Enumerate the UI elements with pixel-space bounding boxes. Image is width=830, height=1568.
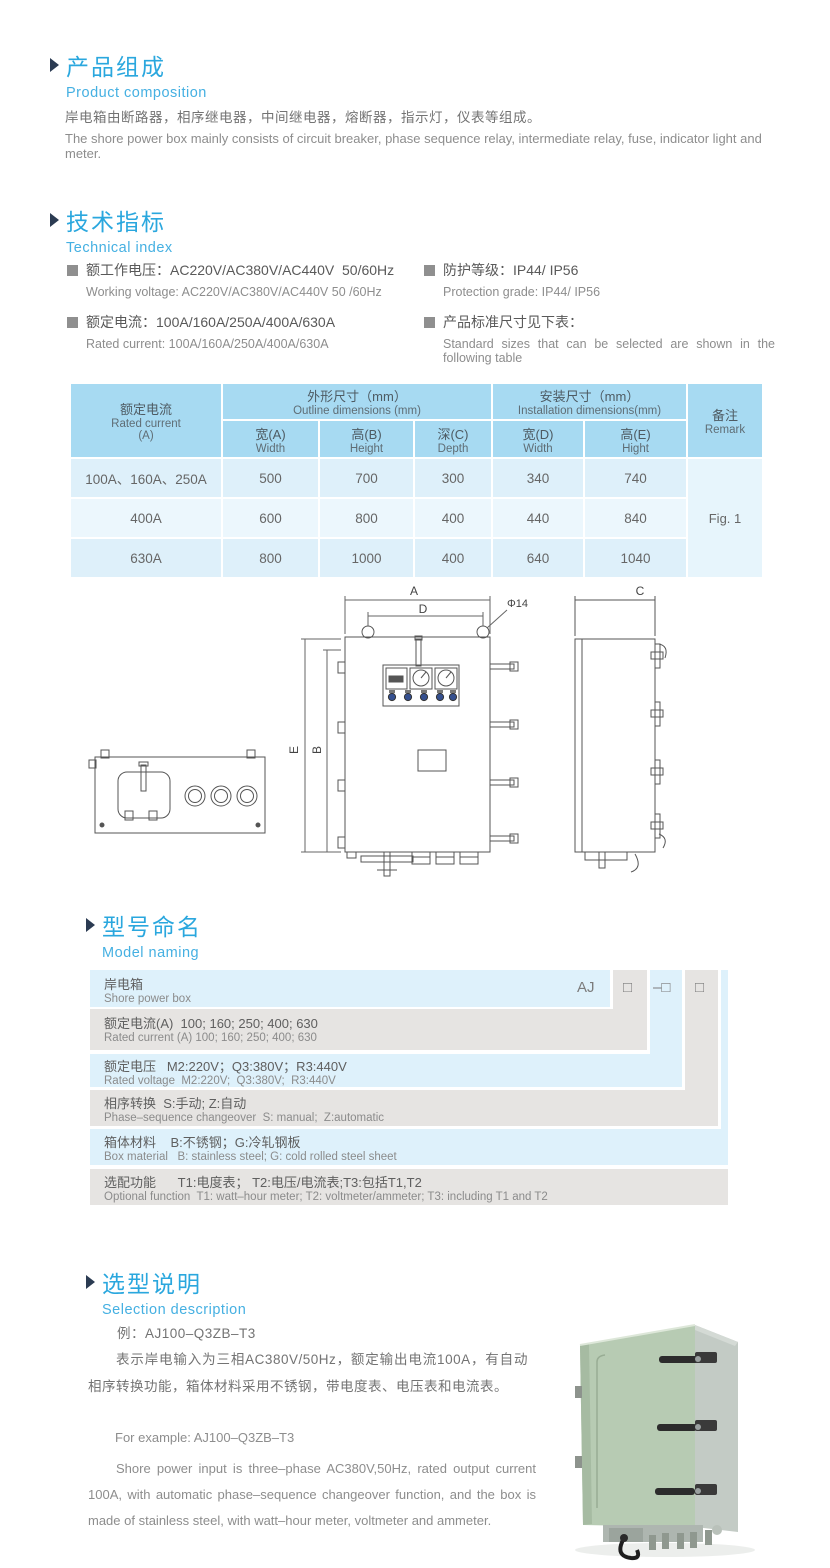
- model-code-box-1: □: [623, 979, 632, 996]
- dim-label-dia: Φ14: [507, 598, 528, 610]
- bullet-standard-sizes-en: Standard sizes that can be selected are …: [443, 337, 775, 365]
- product-photo: [545, 1300, 815, 1562]
- bullet-protection-grade-en: Protection grade: IP44/ IP56: [443, 285, 773, 299]
- dim-label-d: D: [419, 602, 428, 616]
- bullet-protection-grade: 防护等级：IP44/ IP56: [424, 260, 578, 280]
- model-prefix: AJ: [577, 979, 595, 996]
- col-header-rated-current: 额定电流 Rated current (A): [71, 384, 221, 457]
- dim-label-c: C: [636, 584, 645, 598]
- bullet-rated-current: 额定电流：100A/160A/250A/400A/630A: [67, 312, 335, 332]
- section-arrow-icon: [50, 58, 59, 72]
- model-row-product: 岸电箱 Shore power box: [90, 970, 610, 1007]
- section-title-en: Selection description: [102, 1302, 246, 1318]
- table-row: 400A 600 800 400 440 840: [71, 499, 762, 537]
- latch-icons: [490, 662, 518, 843]
- bullet-rated-current-en: Rated current: 100A/160A/250A/400A/630A: [86, 337, 416, 351]
- cabinet-illustration: [545, 1300, 815, 1562]
- section-title-en: Product composition: [66, 85, 207, 101]
- section-technical-header: 技术指标 Technical index: [50, 203, 173, 256]
- selection-body-en: Shore power input is three–phase AC380V,…: [88, 1456, 536, 1534]
- section-title-cn: 型号命名: [102, 908, 202, 942]
- section-composition-header: 产品组成 Product composition: [50, 48, 207, 101]
- subheader-width-a: 宽(A)Width: [223, 421, 318, 457]
- subheader-width-d: 宽(D)Width: [493, 421, 583, 457]
- bullet-square-icon: [67, 317, 78, 328]
- model-row-voltage: 额定电压 M2:220V；Q3:380V；R3:440V Rated volta…: [90, 1054, 682, 1087]
- section-model-header: 型号命名 Model naming: [86, 908, 202, 961]
- side-latch-icons: [651, 644, 666, 848]
- col-header-install: 安装尺寸（mm） Installation dimensions(mm): [493, 384, 686, 419]
- model-row-optional: 选配功能 T1:电度表； T2:电压/电流表;T3:包括T1,T2 Option…: [90, 1169, 728, 1205]
- composition-body-en: The shore power box mainly consists of c…: [65, 131, 775, 161]
- meter-panel: [383, 665, 459, 706]
- remark-cell: Fig. 1: [688, 459, 762, 577]
- dimension-lines: [301, 596, 507, 852]
- model-row-phase: 相序转换 S:手动; Z:自动 Phase–sequence changeove…: [90, 1090, 718, 1126]
- table-row: 630A 800 1000 400 640 1040: [71, 539, 762, 577]
- dimension-labels: A D Φ14 E B C: [287, 584, 645, 754]
- section-arrow-icon: [50, 213, 59, 227]
- dimensions-table: 额定电流 Rated current (A) 外形尺寸（mm） Outline …: [69, 382, 764, 579]
- composition-body-cn: 岸电箱由断路器，相序继电器，中间继电器，熔断器，指示灯，仪表等组成。: [65, 106, 765, 126]
- side-view-drawing: [575, 596, 666, 872]
- section-arrow-icon: [86, 918, 95, 932]
- section-title-en: Technical index: [66, 240, 173, 256]
- section-selection-header: 选型说明 Selection description: [86, 1265, 246, 1318]
- section-title-cn: 产品组成: [66, 48, 166, 82]
- dim-label-a: A: [410, 584, 418, 598]
- section-title-en: Model naming: [102, 945, 202, 961]
- bullet-standard-sizes: 产品标准尺寸见下表：: [424, 312, 583, 332]
- subheader-height-b: 高(B)Height: [320, 421, 413, 457]
- model-row-current: 额定电流(A) 100; 160; 250; 400; 630 Rated cu…: [90, 1009, 647, 1050]
- bottom-view-drawing: [89, 750, 265, 833]
- subheader-height-e: 高(E)Hight: [585, 421, 686, 457]
- table-row: 100A、160A、250A 500 700 300 340 740 Fig. …: [71, 459, 762, 497]
- model-code-box-3: □: [695, 979, 704, 996]
- selection-example-en: For example: AJ100–Q3ZB–T3: [115, 1430, 294, 1445]
- section-arrow-icon: [86, 1275, 95, 1289]
- selection-example-cn: 例：AJ100–Q3ZB–T3: [117, 1322, 256, 1342]
- dim-label-b: B: [310, 746, 324, 754]
- section-title-cn: 选型说明: [102, 1265, 202, 1299]
- dim-label-e: E: [287, 746, 301, 754]
- bullet-working-voltage: 额工作电压：AC220V/AC380V/AC440V 50/60Hz: [67, 260, 394, 280]
- bullet-working-voltage-en: Working voltage: AC220V/AC380V/AC440V 50…: [86, 285, 416, 299]
- front-view-drawing: [338, 626, 518, 876]
- selection-body-cn: 表示岸电输入为三相AC380V/50Hz，额定输出电流100A，有自动相序转换功…: [88, 1346, 528, 1400]
- catalog-page: 产品组成 Product composition 岸电箱由断路器，相序继电器，中…: [0, 0, 830, 1568]
- model-code-box-2: –□: [653, 979, 670, 996]
- bullet-square-icon: [67, 265, 78, 276]
- model-row-material: 箱体材料 B:不锈钢；G:冷轧钢板 Box material B: stainl…: [90, 1129, 728, 1165]
- outline-dimension-drawing: A D Φ14 E B C: [55, 582, 775, 894]
- section-title-cn: 技术指标: [66, 203, 166, 237]
- subheader-depth-c: 深(C)Depth: [415, 421, 491, 457]
- bullet-square-icon: [424, 265, 435, 276]
- model-naming-diagram: 岸电箱 Shore power box 额定电流(A) 100; 160; 25…: [90, 970, 728, 1208]
- col-header-outline: 外形尺寸（mm） Outline dimensions (mm): [223, 384, 491, 419]
- bullet-square-icon: [424, 317, 435, 328]
- col-header-remark: 备注 Remark: [688, 384, 762, 457]
